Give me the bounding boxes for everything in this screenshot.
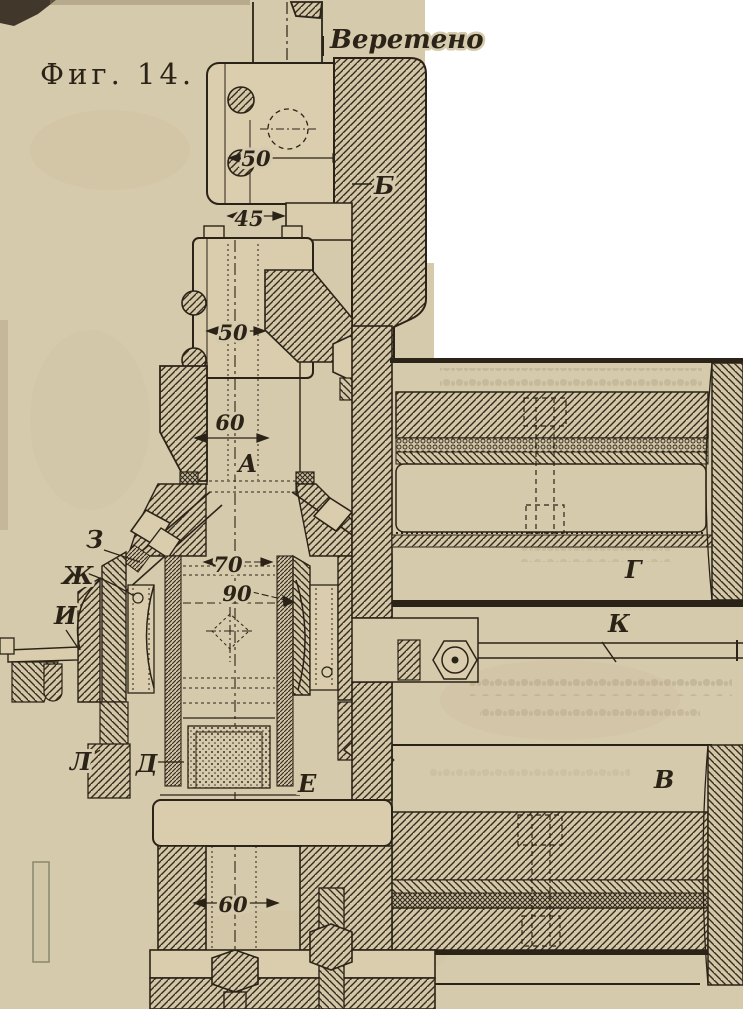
part-label-d: Д: [135, 749, 158, 778]
side-bolt-nut: [310, 924, 352, 970]
part-label-k: К: [607, 609, 631, 638]
part-label-zh: Ж: [60, 561, 94, 590]
spindle-label: Веретено: [329, 25, 484, 55]
bottom-bolt-nut: [212, 950, 258, 992]
dim-gear-bore: 70: [213, 552, 243, 577]
part-label-a: А: [236, 449, 258, 478]
figure-caption: Фиг. 14.: [40, 57, 195, 91]
dim-bottom-bore: 60: [218, 892, 248, 917]
dim-mid-bore: 50: [218, 320, 248, 345]
margin-artifact-strip: [33, 862, 49, 962]
figure-14-drawing: Фиг. 14. Веретено 50 Б 45: [0, 0, 743, 1009]
part-label-g: Г: [624, 555, 643, 584]
dim-neck: 45: [234, 206, 263, 231]
dim-top-bore: 50: [241, 146, 271, 171]
dim-quill: 60: [215, 410, 245, 435]
part-label-l: Л: [68, 747, 92, 776]
scanned-book-page: Фиг. 14. Веретено 50 Б 45: [0, 0, 743, 1009]
part-label-e: Е: [297, 769, 317, 798]
part-label-i: И: [53, 601, 78, 630]
dim-gear-od: 90: [222, 581, 252, 606]
part-label-v: В: [653, 765, 674, 794]
bolt-section: [228, 87, 254, 113]
bolt-section: [182, 291, 206, 315]
housing-right-column: [352, 326, 392, 800]
part-label-z: З: [86, 525, 103, 554]
part-label-b: Б: [373, 171, 395, 200]
